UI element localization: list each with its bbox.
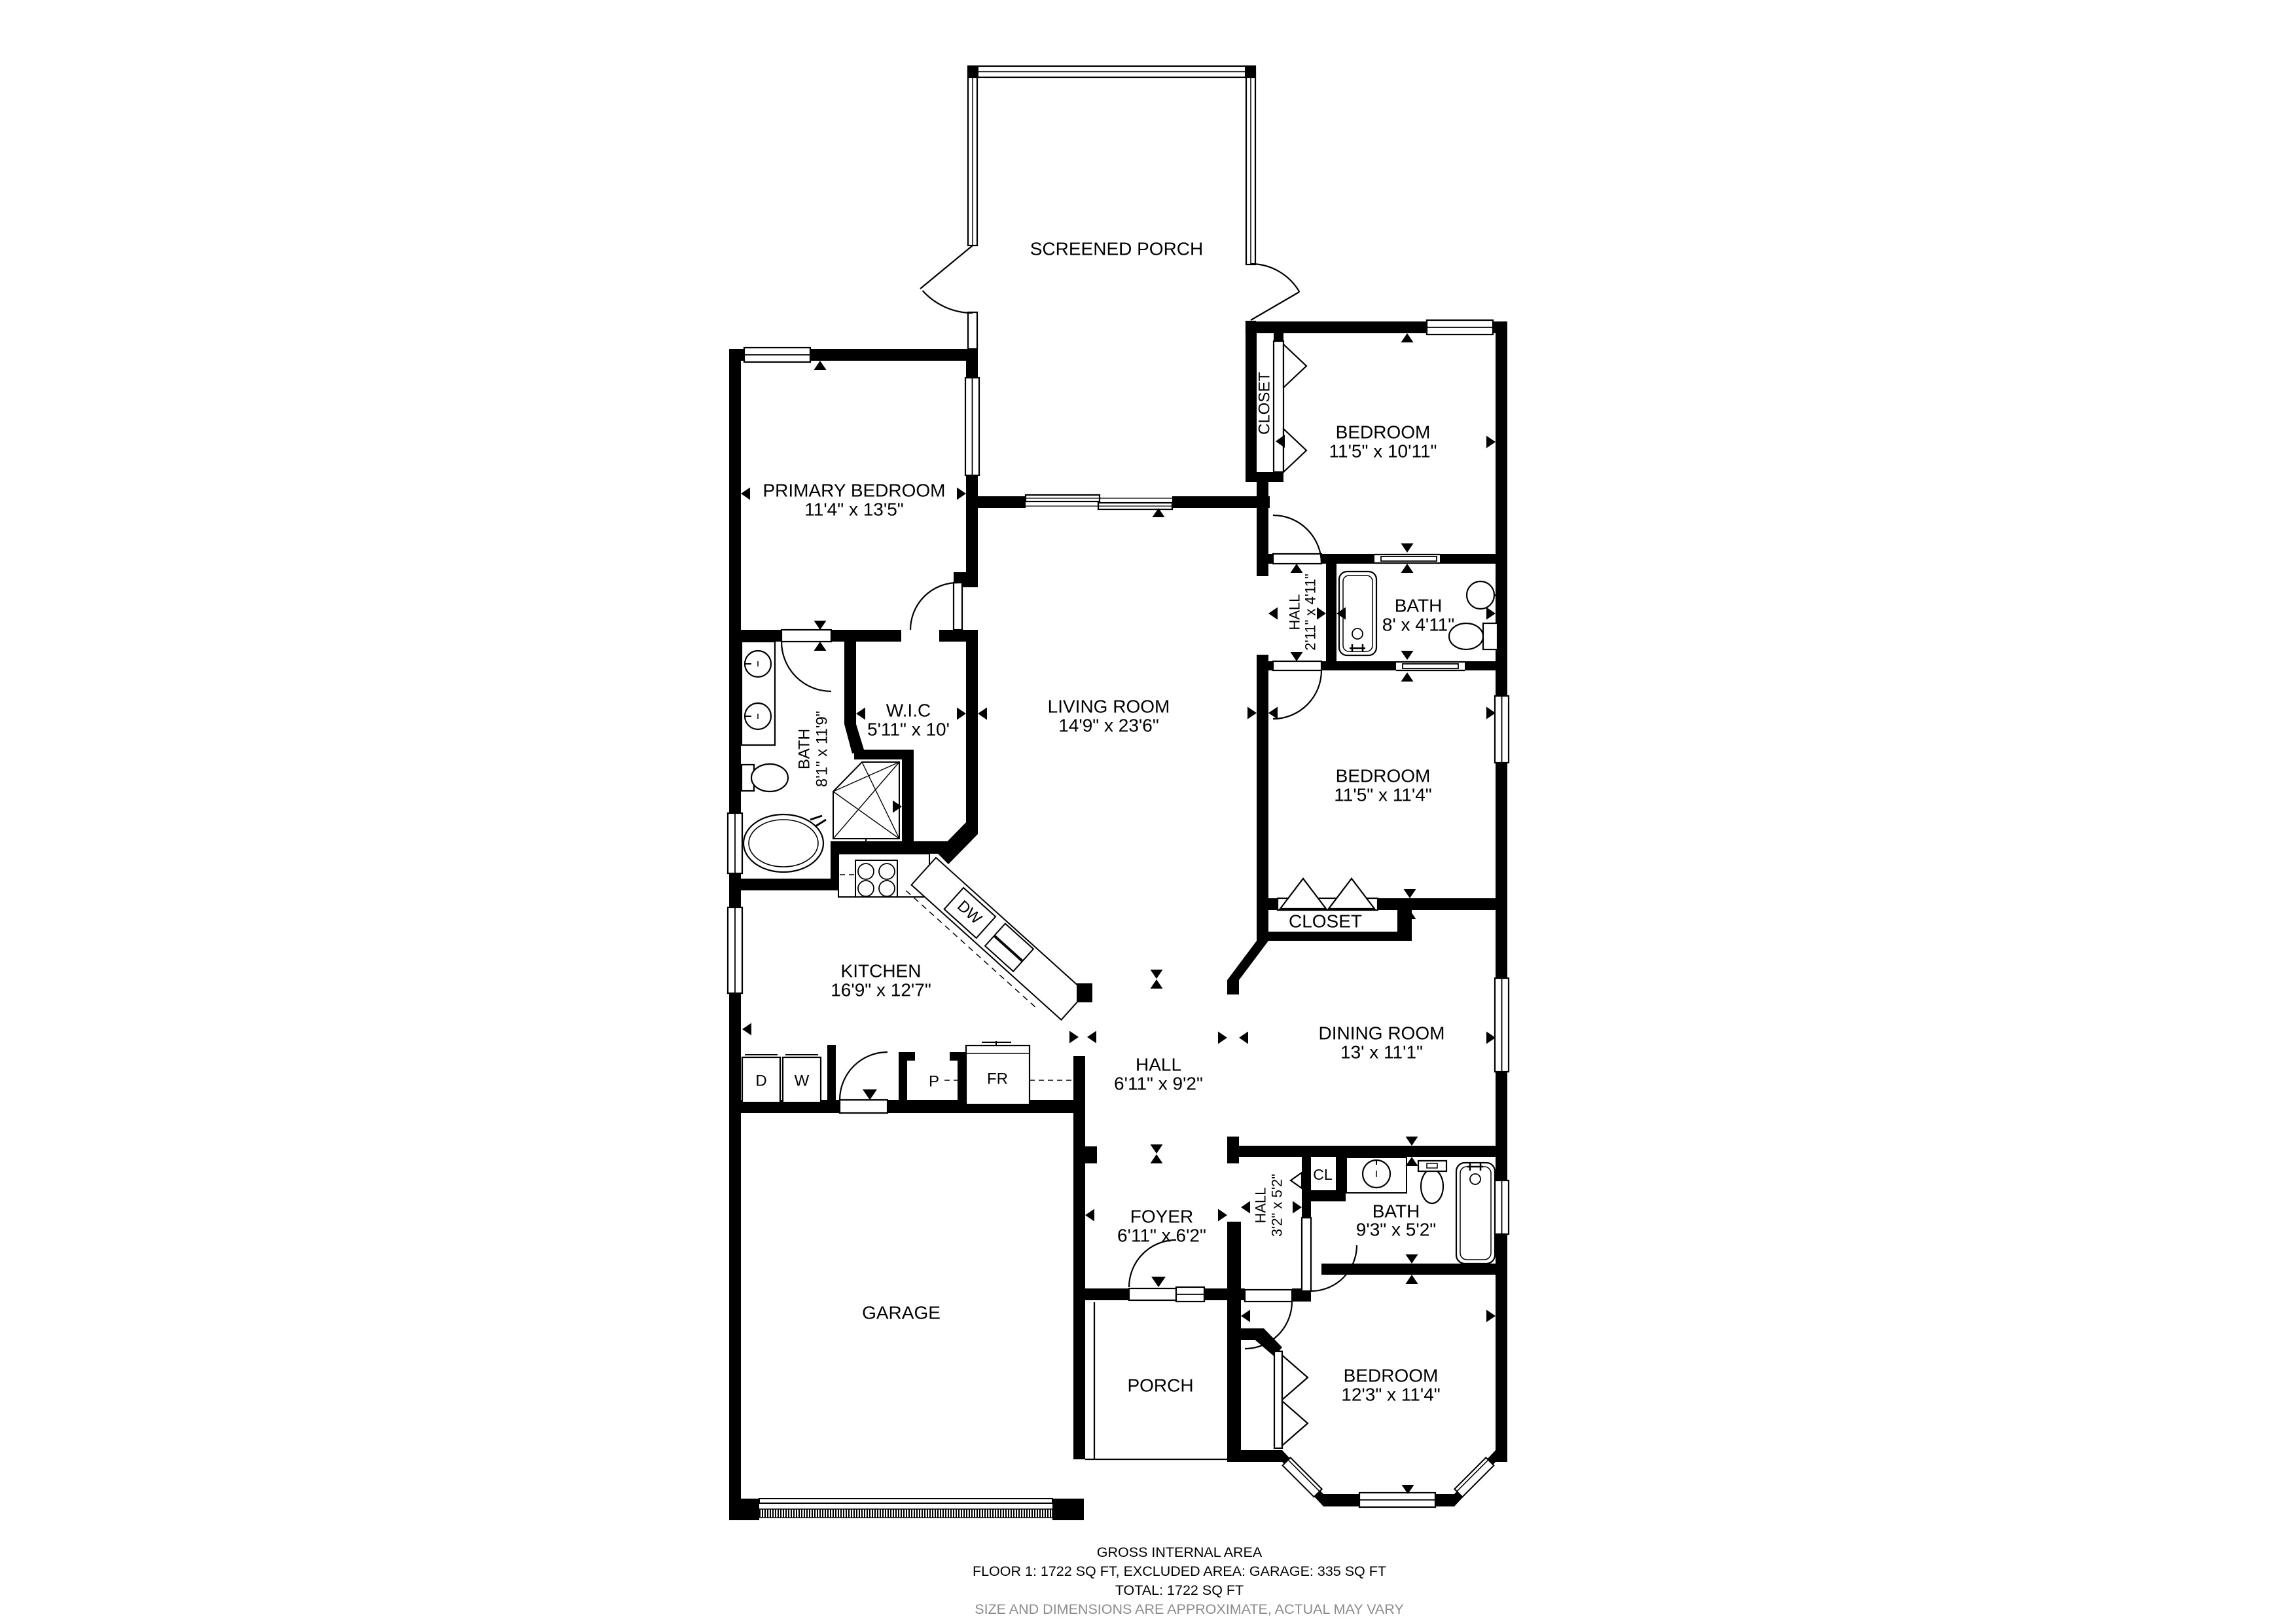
svg-text:11'5" x 11'4": 11'5" x 11'4": [1334, 785, 1431, 805]
svg-text:12'3" x 11'4": 12'3" x 11'4": [1341, 1385, 1440, 1405]
svg-text:5'11" x 10': 5'11" x 10': [867, 720, 950, 740]
svg-text:2'11" x 4'11": 2'11" x 4'11": [1302, 574, 1319, 650]
svg-text:PRIMARY BEDROOM: PRIMARY BEDROOM: [762, 481, 945, 501]
svg-text:3'2" x 5'2": 3'2" x 5'2": [1269, 1174, 1285, 1237]
svg-text:W.I.C: W.I.C: [886, 701, 931, 721]
svg-text:PORCH: PORCH: [1127, 1376, 1193, 1396]
svg-text:BATH: BATH: [796, 729, 814, 769]
svg-text:8'1" x 11'9": 8'1" x 11'9": [814, 711, 831, 788]
svg-text:CLOSET: CLOSET: [1289, 911, 1362, 932]
svg-text:BEDROOM: BEDROOM: [1336, 422, 1431, 443]
svg-text:6'11" x 6'2": 6'11" x 6'2": [1117, 1226, 1206, 1246]
svg-text:BEDROOM: BEDROOM: [1344, 1366, 1439, 1386]
svg-text:16'9" x 12'7": 16'9" x 12'7": [831, 980, 931, 1000]
svg-text:TOTAL: 1722 SQ FT: TOTAL: 1722 SQ FT: [1115, 1582, 1244, 1598]
svg-text:FOYER: FOYER: [1130, 1207, 1193, 1227]
svg-text:6'11" x 9'2": 6'11" x 9'2": [1114, 1074, 1203, 1094]
svg-text:14'9" x 23'6": 14'9" x 23'6": [1058, 716, 1159, 736]
svg-text:HALL: HALL: [1253, 1187, 1269, 1223]
svg-text:CL: CL: [1313, 1166, 1333, 1183]
svg-text:11'4" x 13'5": 11'4" x 13'5": [804, 500, 903, 520]
svg-text:GARAGE: GARAGE: [862, 1303, 941, 1323]
svg-text:9'3" x 5'2": 9'3" x 5'2": [1356, 1220, 1436, 1240]
svg-text:BEDROOM: BEDROOM: [1336, 766, 1431, 786]
svg-text:HALL: HALL: [1287, 594, 1303, 630]
svg-text:BATH: BATH: [1395, 596, 1443, 616]
svg-text:FLOOR 1: 1722 SQ FT, EXCLUDED: FLOOR 1: 1722 SQ FT, EXCLUDED AREA: GARA…: [973, 1563, 1386, 1579]
svg-text:DINING ROOM: DINING ROOM: [1319, 1023, 1445, 1044]
svg-text:11'5" x 10'11": 11'5" x 10'11": [1329, 441, 1437, 462]
svg-text:D: D: [755, 1072, 766, 1090]
svg-text:SIZE AND DIMENSIONS ARE APPROX: SIZE AND DIMENSIONS ARE APPROXIMATE, ACT…: [975, 1601, 1404, 1617]
svg-text:BATH: BATH: [1372, 1201, 1420, 1222]
svg-text:HALL: HALL: [1136, 1055, 1181, 1075]
svg-text:W: W: [795, 1072, 810, 1090]
svg-text:SCREENED PORCH: SCREENED PORCH: [1030, 239, 1203, 259]
svg-text:CLOSET: CLOSET: [1256, 372, 1274, 435]
svg-text:P: P: [929, 1073, 939, 1091]
svg-text:13' x 11'1": 13' x 11'1": [1340, 1042, 1423, 1063]
svg-text:LIVING ROOM: LIVING ROOM: [1048, 697, 1170, 717]
svg-text:FR: FR: [987, 1070, 1008, 1088]
svg-text:8' x 4'11": 8' x 4'11": [1382, 615, 1454, 635]
svg-text:GROSS INTERNAL AREA: GROSS INTERNAL AREA: [1097, 1544, 1263, 1560]
svg-text:KITCHEN: KITCHEN: [841, 961, 922, 981]
